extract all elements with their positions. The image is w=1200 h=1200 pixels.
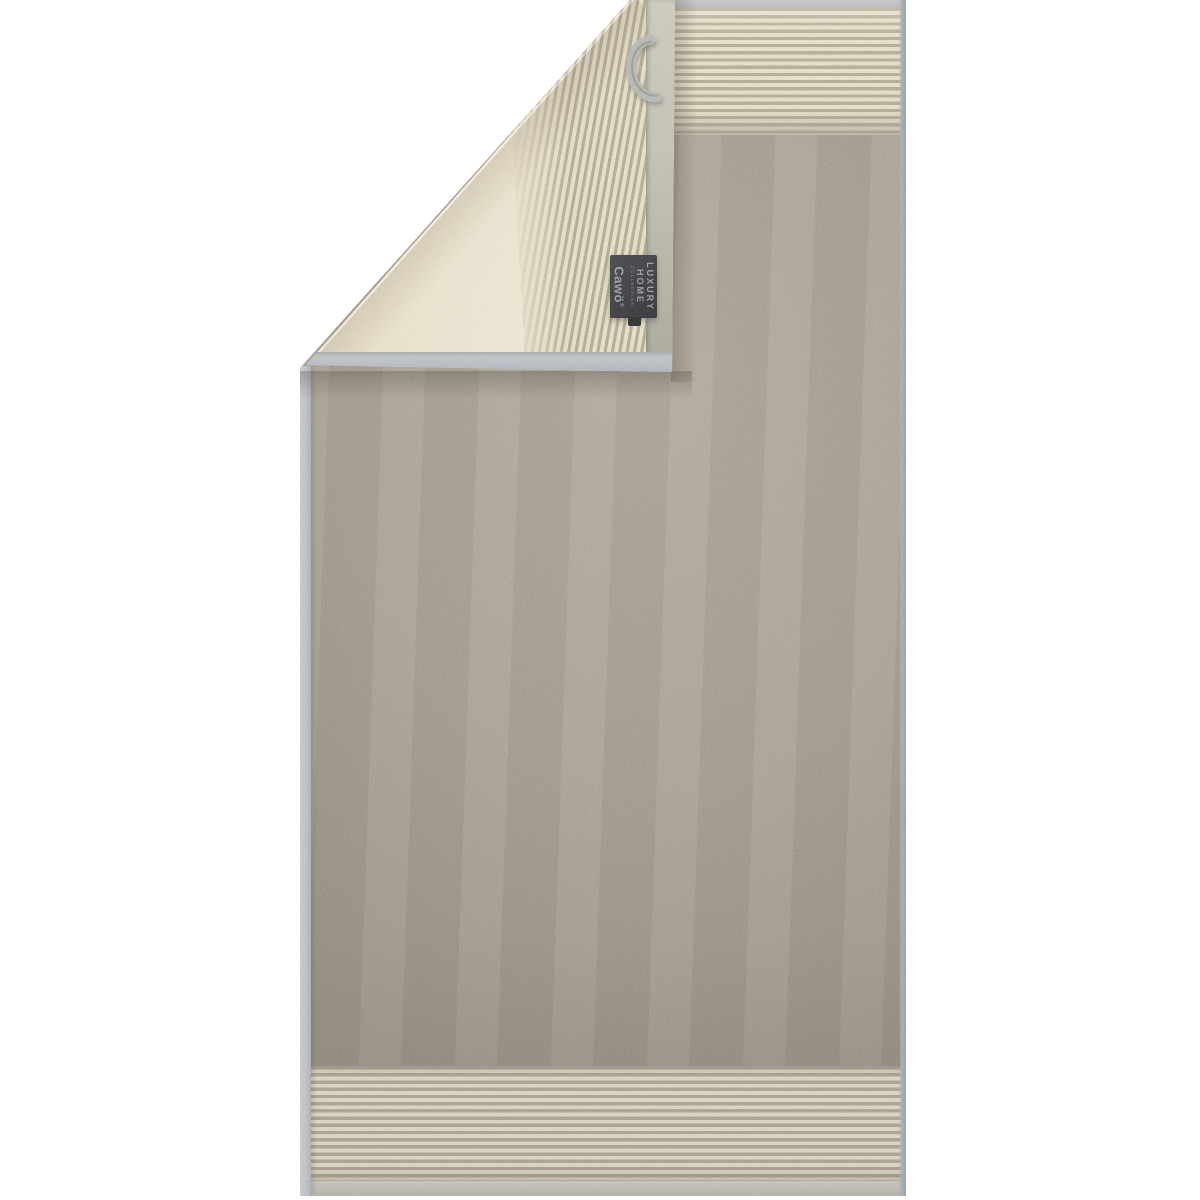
label-home-text: HOME [635, 255, 645, 318]
label-luxury-text: LUXURY [645, 255, 655, 318]
label-brand-name: Cawö [612, 266, 627, 303]
brand-label: LUXURY HOME COLLECTION Cawö® [610, 255, 657, 318]
towel-photo: LUXURY HOME COLLECTION Cawö® [300, 0, 906, 1196]
brand-label-fold-tab [628, 317, 641, 326]
towel-bottom-border-stripes [300, 1066, 906, 1180]
brand-label-content: LUXURY HOME COLLECTION Cawö® [610, 255, 657, 318]
towel-right-hem [899, 0, 906, 1196]
label-collection-text: COLLECTION [629, 255, 635, 318]
folded-corner-cast-shadow-horizontal [300, 371, 692, 399]
hanging-loop [610, 28, 670, 113]
label-brand-logo: Cawö® [612, 255, 628, 318]
product-photo-scene: LUXURY HOME COLLECTION Cawö® [0, 0, 1200, 1200]
towel-bottom-hem [300, 1180, 906, 1197]
towel-left-hem [300, 366, 311, 1196]
label-registered-mark: ® [618, 303, 624, 307]
folded-corner-cast-shadow-vertical [671, 0, 697, 382]
